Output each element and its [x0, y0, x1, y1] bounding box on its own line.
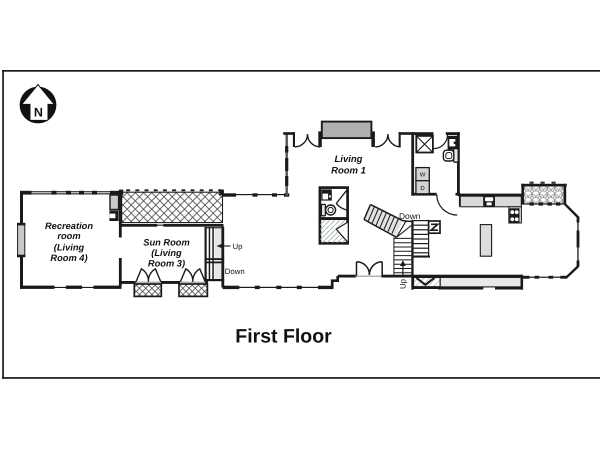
svg-text:Room 4): Room 4) [50, 253, 87, 263]
svg-text:Up: Up [233, 242, 244, 251]
svg-text:Room 1: Room 1 [331, 165, 366, 176]
svg-text:room: room [57, 231, 80, 241]
svg-text:Recreation: Recreation [45, 221, 93, 231]
svg-text:Down: Down [399, 211, 421, 221]
svg-text:Sun Room: Sun Room [143, 237, 189, 247]
svg-text:Living: Living [335, 154, 363, 165]
svg-text:N: N [34, 106, 43, 120]
svg-text:Room 3): Room 3) [148, 259, 185, 269]
svg-text:D: D [420, 185, 425, 192]
svg-text:First Floor: First Floor [235, 326, 332, 348]
svg-text:W: W [420, 172, 426, 179]
svg-text:Down: Down [225, 267, 245, 276]
svg-text:(Living: (Living [54, 243, 85, 253]
svg-text:Up: Up [398, 278, 407, 289]
svg-text:(Living: (Living [151, 248, 182, 258]
